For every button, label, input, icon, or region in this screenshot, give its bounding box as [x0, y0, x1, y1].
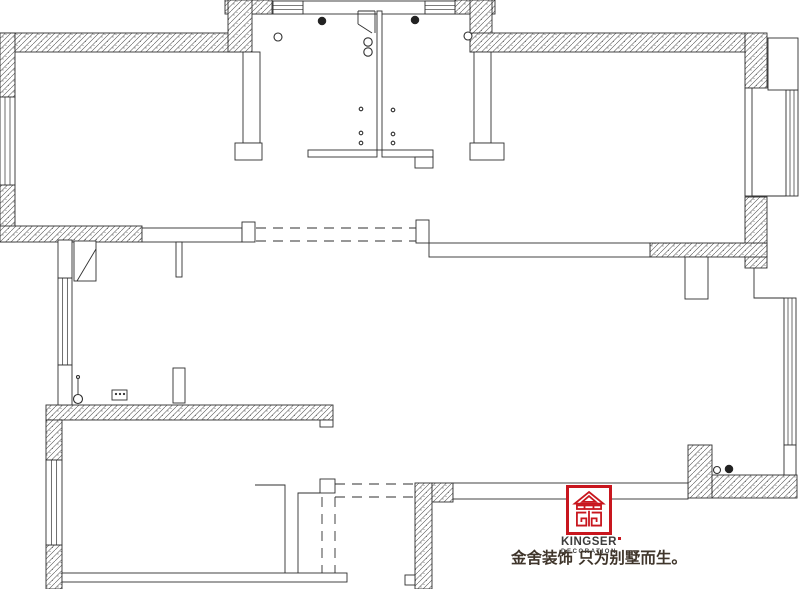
brand-slogan: 金舍装饰 只为别墅而生。 — [511, 546, 687, 568]
kingser-logo-icon — [572, 489, 606, 529]
kingser-logo-frame — [566, 485, 612, 535]
trademark-dot — [618, 537, 621, 540]
floor-plan-canvas — [0, 0, 800, 589]
floor-plan-page: KINGSER DECORATION 金舍装饰 只为别墅而生。 — [0, 0, 800, 589]
